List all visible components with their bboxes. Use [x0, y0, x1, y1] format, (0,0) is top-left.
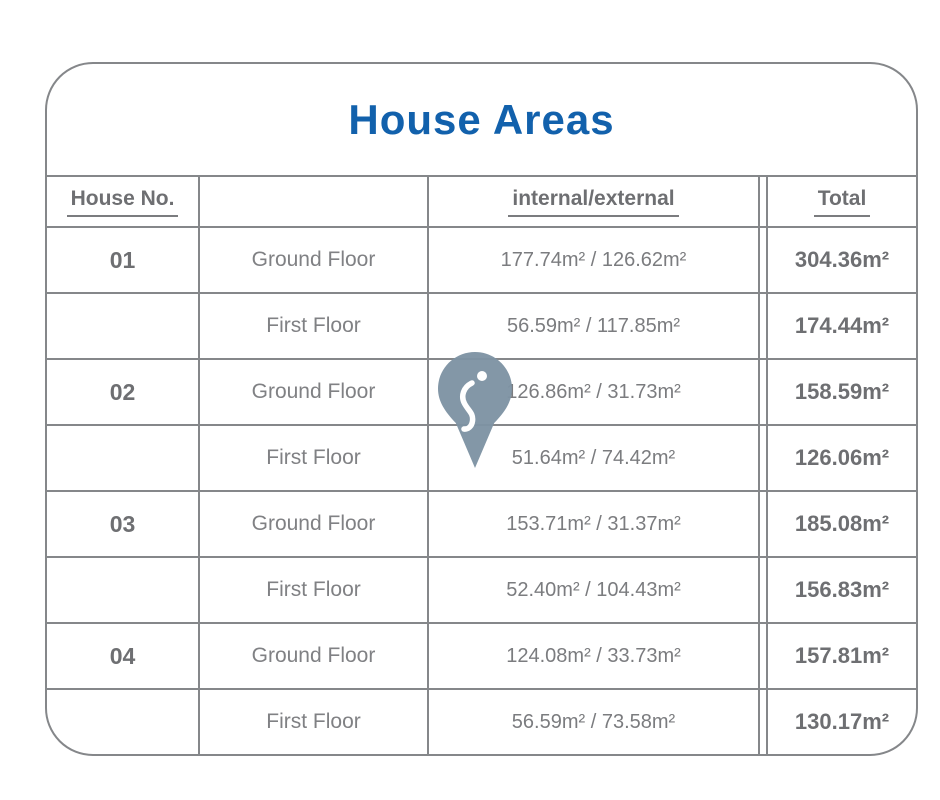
internal-external-header-label: internal/external	[508, 187, 678, 217]
area-value: 56.59m² / 117.85m²	[507, 315, 680, 338]
area-value: 124.08m² / 33.73m²	[506, 645, 681, 668]
floor-cell: Ground Floor	[198, 624, 427, 688]
total-value: 126.06m²	[795, 445, 889, 471]
floor-cell: Ground Floor	[198, 228, 427, 292]
column-divider	[758, 492, 768, 556]
floor-cell: Ground Floor	[198, 492, 427, 556]
floor-value: First Floor	[266, 710, 361, 734]
floor-value: First Floor	[266, 446, 361, 470]
column-divider	[758, 624, 768, 688]
floor-value: Ground Floor	[252, 248, 376, 272]
area-value: 51.64m² / 74.42m²	[512, 447, 675, 470]
area-cell: 56.59m² / 117.85m²	[427, 294, 758, 358]
total-value: 157.81m²	[795, 643, 889, 669]
house-no-cell	[47, 294, 198, 358]
total-cell: 158.59m²	[768, 360, 916, 424]
total-value: 158.59m²	[795, 379, 889, 405]
table-row: 04 Ground Floor 124.08m² / 33.73m² 157.8…	[47, 622, 916, 688]
total-cell: 156.83m²	[768, 558, 916, 622]
area-cell: 52.40m² / 104.43m²	[427, 558, 758, 622]
column-divider	[758, 558, 768, 622]
floor-value: Ground Floor	[252, 512, 376, 536]
total-value: 185.08m²	[795, 511, 889, 537]
house-no-cell	[47, 690, 198, 754]
total-value: 156.83m²	[795, 577, 889, 603]
house-no-cell: 01	[47, 228, 198, 292]
floor-cell: First Floor	[198, 690, 427, 754]
area-value: 153.71m² / 31.37m²	[506, 513, 681, 536]
house-no-cell: 03	[47, 492, 198, 556]
house-no-cell: 02	[47, 360, 198, 424]
total-cell: 174.44m²	[768, 294, 916, 358]
total-value: 130.17m²	[795, 709, 889, 735]
page: { "title": "House Areas", "colors": { "t…	[0, 0, 940, 800]
floor-cell: First Floor	[198, 426, 427, 490]
area-cell: 124.08m² / 33.73m²	[427, 624, 758, 688]
house-no-cell: 04	[47, 624, 198, 688]
table-row: First Floor 52.40m² / 104.43m² 156.83m²	[47, 556, 916, 622]
location-pin-icon	[437, 350, 513, 470]
column-divider	[758, 360, 768, 424]
area-value: 126.86m² / 31.73m²	[506, 381, 681, 404]
internal-external-header-cell: internal/external	[427, 177, 758, 226]
area-value: 177.74m² / 126.62m²	[501, 249, 687, 272]
house-no-cell	[47, 558, 198, 622]
total-cell: 157.81m²	[768, 624, 916, 688]
floor-cell: First Floor	[198, 558, 427, 622]
house-no-value: 03	[110, 511, 136, 538]
column-divider	[758, 426, 768, 490]
table-row: First Floor 56.59m² / 73.58m² 130.17m²	[47, 688, 916, 754]
area-cell: 56.59m² / 73.58m²	[427, 690, 758, 754]
column-divider	[758, 228, 768, 292]
floor-header-cell	[198, 177, 427, 226]
floor-cell: Ground Floor	[198, 360, 427, 424]
house-no-header-cell: House No.	[47, 177, 198, 226]
area-cell: 177.74m² / 126.62m²	[427, 228, 758, 292]
total-cell: 304.36m²	[768, 228, 916, 292]
area-value: 52.40m² / 104.43m²	[506, 579, 681, 602]
area-value: 56.59m² / 73.58m²	[512, 711, 675, 734]
table-row: 01 Ground Floor 177.74m² / 126.62m² 304.…	[47, 226, 916, 292]
title-area: House Areas	[47, 64, 916, 175]
total-header-cell: Total	[768, 177, 916, 226]
house-no-value: 01	[110, 247, 136, 274]
house-no-header-label: House No.	[67, 187, 179, 217]
floor-value: Ground Floor	[252, 644, 376, 668]
total-header-label: Total	[814, 187, 871, 217]
table-header-row: House No. internal/external Total	[47, 177, 916, 226]
table-row: 03 Ground Floor 153.71m² / 31.37m² 185.0…	[47, 490, 916, 556]
total-cell: 185.08m²	[768, 492, 916, 556]
total-value: 304.36m²	[795, 247, 889, 273]
page-title: House Areas	[348, 96, 614, 144]
floor-value: First Floor	[266, 578, 361, 602]
house-no-value: 04	[110, 643, 136, 670]
floor-value: Ground Floor	[252, 380, 376, 404]
floor-cell: First Floor	[198, 294, 427, 358]
house-no-cell	[47, 426, 198, 490]
column-divider	[758, 294, 768, 358]
total-value: 174.44m²	[795, 313, 889, 339]
column-divider	[758, 177, 768, 226]
floor-value: First Floor	[266, 314, 361, 338]
area-cell: 153.71m² / 31.37m²	[427, 492, 758, 556]
house-no-value: 02	[110, 379, 136, 406]
column-divider	[758, 690, 768, 754]
table-row: First Floor 56.59m² / 117.85m² 174.44m²	[47, 292, 916, 358]
total-cell: 130.17m²	[768, 690, 916, 754]
total-cell: 126.06m²	[768, 426, 916, 490]
